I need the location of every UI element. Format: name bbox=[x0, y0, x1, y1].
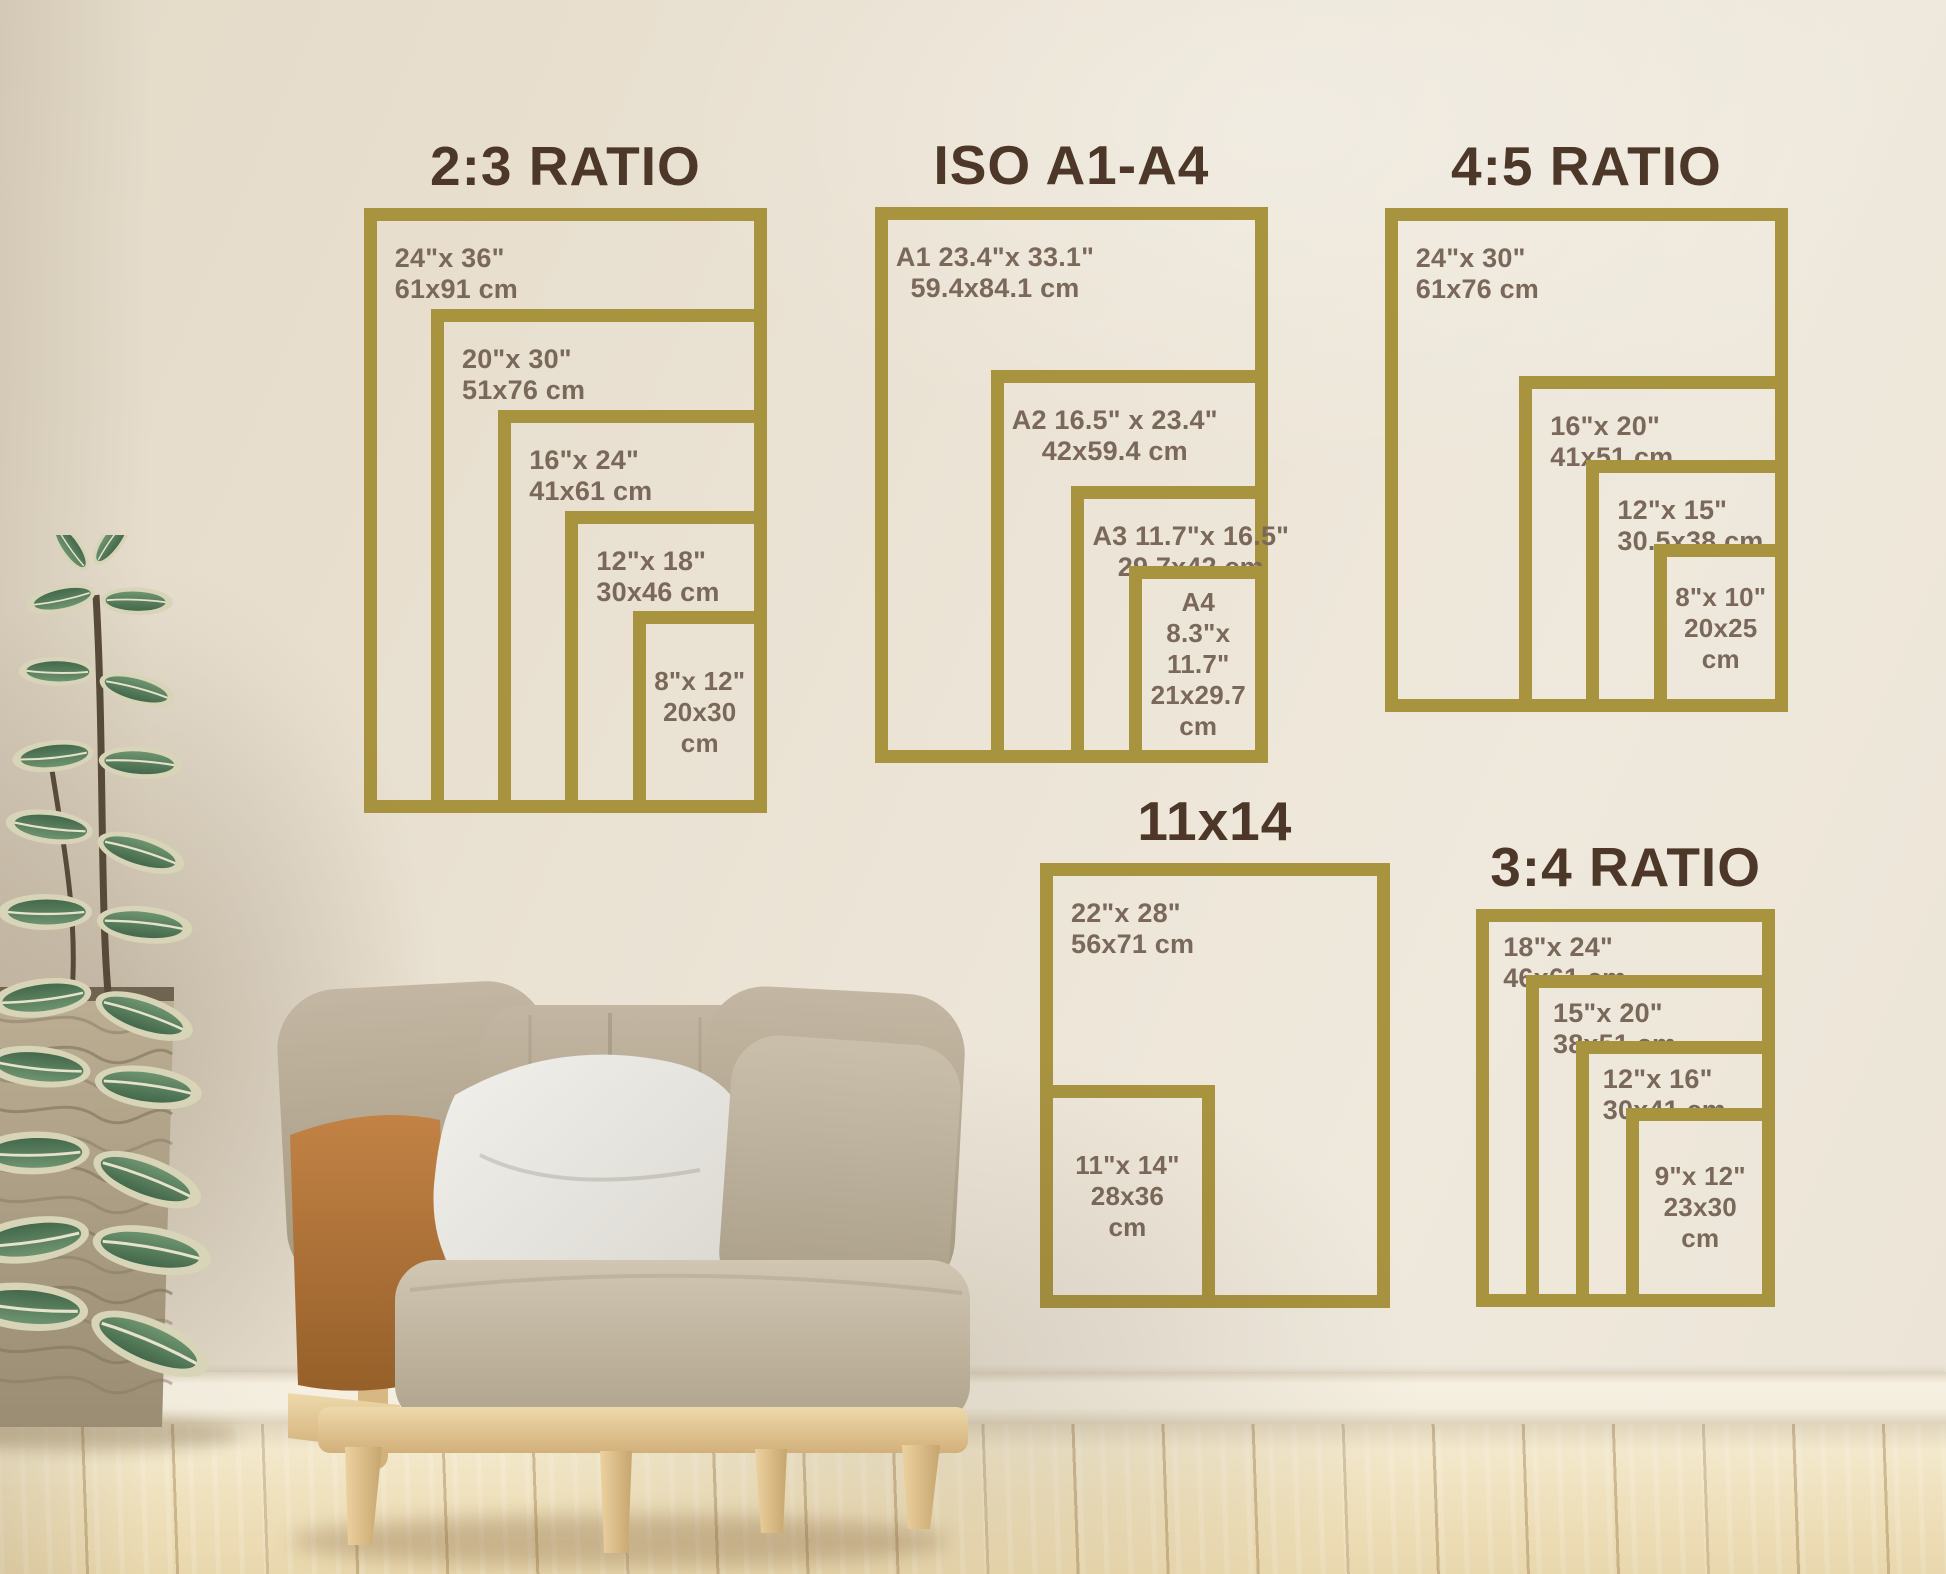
size-label: A1 23.4"x 33.1"59.4x84.1 cm bbox=[896, 242, 1094, 304]
size-label: 22"x 28"56x71 cm bbox=[1071, 898, 1194, 960]
size-label: 24"x 36"61x91 cm bbox=[395, 243, 518, 305]
size-label: 11"x 14"28x36cm bbox=[1053, 1098, 1202, 1295]
size-label: 16"x 24"41x61 cm bbox=[529, 445, 652, 507]
wooden-front-rail bbox=[318, 1407, 968, 1453]
room-scene: 2:3 RATIO24"x 36"61x91 cm20"x 30"51x76 c… bbox=[0, 0, 1946, 1574]
size-label: A48.3"x 11.7"21x29.7cm bbox=[1142, 579, 1255, 750]
size-label: A2 16.5" x 23.4"42x59.4 cm bbox=[1012, 405, 1218, 467]
size-label: 24"x 30"61x76 cm bbox=[1416, 243, 1539, 305]
section-title-ratio-3-4: 3:4 RATIO bbox=[1326, 835, 1926, 899]
section-title-iso-a1-a4: ISO A1-A4 bbox=[771, 133, 1371, 197]
plant-stems bbox=[52, 595, 108, 993]
wooden-leg bbox=[902, 1445, 940, 1529]
size-label: 20"x 30"51x76 cm bbox=[462, 344, 585, 406]
size-label: 8"x 10"20x25cm bbox=[1667, 557, 1775, 699]
section-title-ratio-4-5: 4:5 RATIO bbox=[1286, 134, 1886, 198]
wooden-leg bbox=[600, 1451, 632, 1553]
armchair bbox=[230, 955, 990, 1574]
size-label: 12"x 18"30x46 cm bbox=[596, 546, 719, 608]
size-label: 8"x 12"20x30 cm bbox=[646, 624, 754, 800]
size-label: 9"x 12"23x30cm bbox=[1639, 1121, 1762, 1294]
